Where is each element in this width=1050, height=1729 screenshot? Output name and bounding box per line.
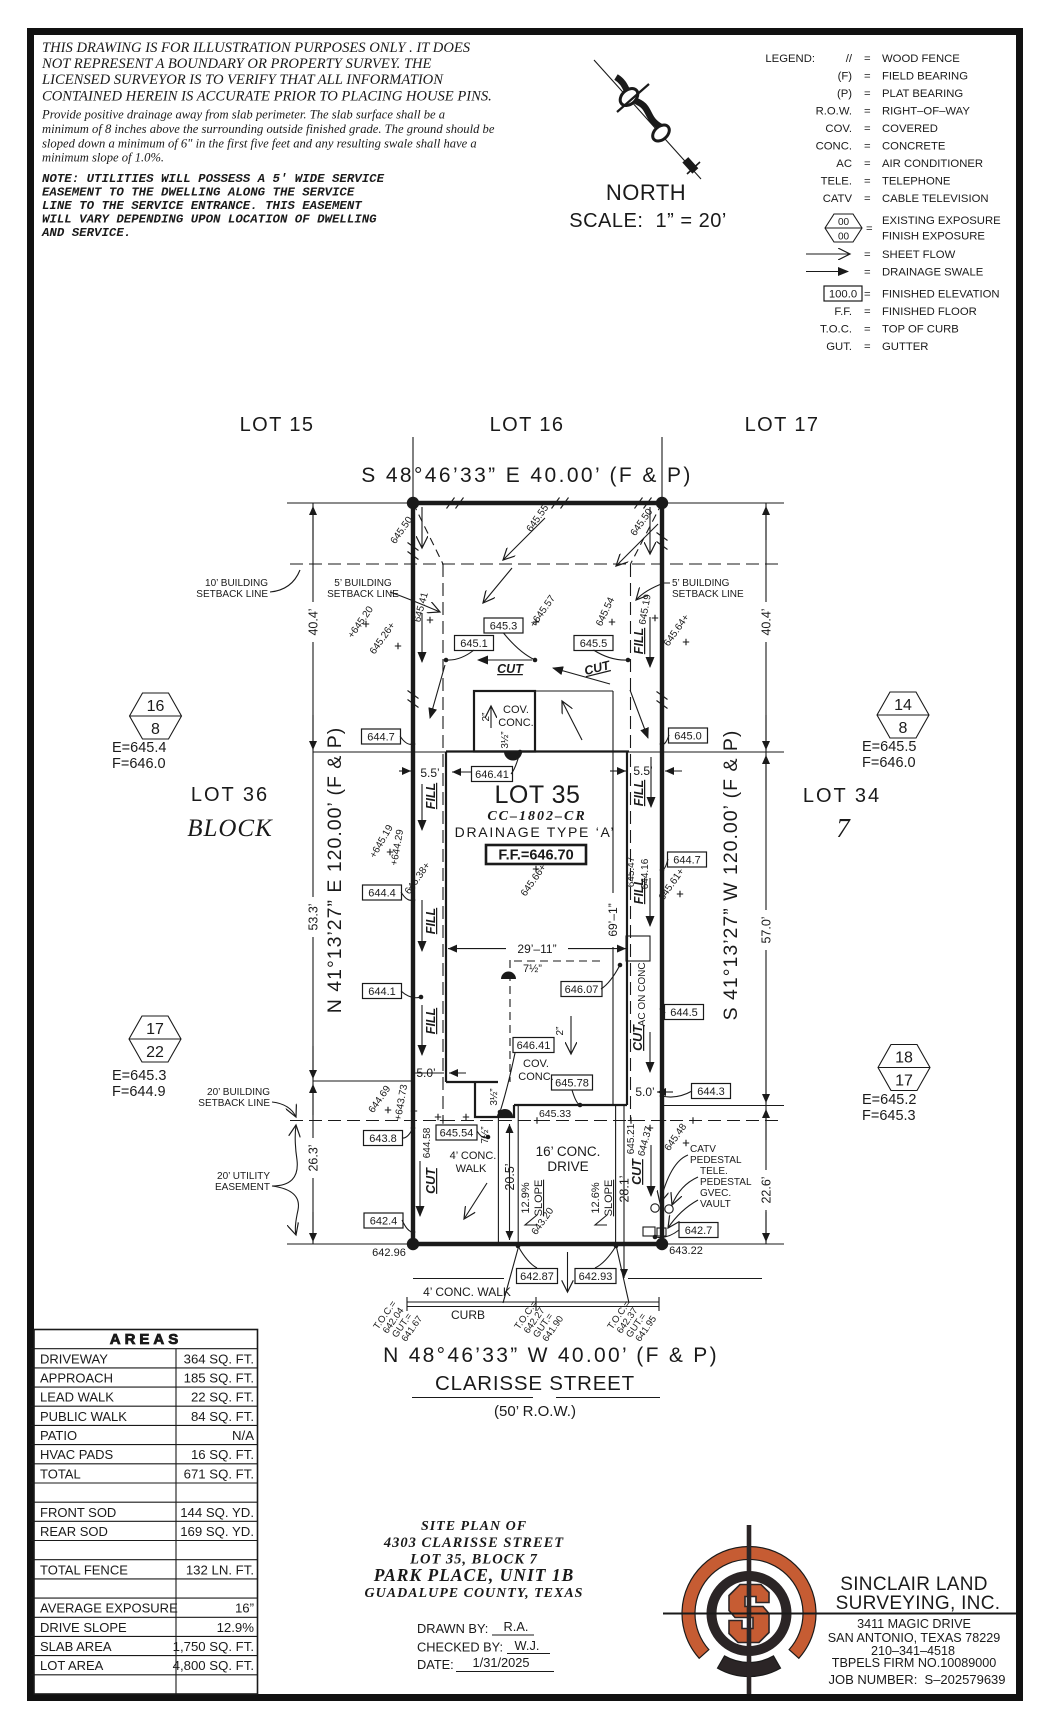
svg-text:CONCRETE: CONCRETE xyxy=(882,141,946,153)
svg-text:PATIO: PATIO xyxy=(40,1428,77,1443)
svg-text:12.6%: 12.6% xyxy=(590,1182,602,1213)
svg-text:20’ UTILITY: 20’ UTILITY xyxy=(217,1171,270,1182)
svg-text:COV.: COV. xyxy=(503,704,529,716)
svg-text:=: = xyxy=(864,158,871,170)
svg-text:FILL: FILL xyxy=(424,908,438,934)
svg-text:643.22: 643.22 xyxy=(669,1245,703,1257)
svg-text:W.J.: W.J. xyxy=(515,1638,540,1653)
svg-text:5’ BUILDING: 5’ BUILDING xyxy=(334,578,392,589)
svg-text:DRIVEWAY: DRIVEWAY xyxy=(40,1351,108,1366)
svg-text:AREAS: AREAS xyxy=(110,1331,183,1348)
svg-text:TELEPHONE: TELEPHONE xyxy=(882,176,951,188)
svg-text:TOTAL FENCE: TOTAL FENCE xyxy=(40,1562,128,1577)
svg-text:LOT 16: LOT 16 xyxy=(490,414,565,436)
svg-text:8: 8 xyxy=(899,720,908,737)
svg-text:646.41: 646.41 xyxy=(475,769,509,781)
svg-text:LOT 34: LOT 34 xyxy=(803,785,881,807)
svg-text:645.3: 645.3 xyxy=(490,621,518,633)
svg-text:minimum slope of 1.0%.: minimum slope of 1.0%. xyxy=(42,151,164,165)
svg-text:E=645.3: E=645.3 xyxy=(112,1068,166,1084)
svg-text:CABLE TELEVISION: CABLE TELEVISION xyxy=(882,193,989,205)
svg-text:5.0’: 5.0’ xyxy=(635,1085,654,1099)
svg-text:=: = xyxy=(864,71,871,83)
svg-text:SETBACK LINE: SETBACK LINE xyxy=(198,1098,270,1109)
svg-text:642.7: 642.7 xyxy=(685,1225,713,1237)
svg-text:SHEET FLOW: SHEET FLOW xyxy=(882,249,956,261)
svg-text:F=645.3: F=645.3 xyxy=(862,1108,916,1124)
svg-text:16”: 16” xyxy=(235,1601,254,1616)
svg-text:EASEMENT TO THE DWELLING ALONG: EASEMENT TO THE DWELLING ALONG THE SERVI… xyxy=(42,186,355,200)
svg-text:N 48°46’33” W 40.00’ (F & P): N 48°46’33” W 40.00’ (F & P) xyxy=(383,1344,719,1367)
svg-text:643.8: 643.8 xyxy=(369,1133,397,1145)
svg-text:4’ CONC.: 4’ CONC. xyxy=(450,1150,497,1162)
svg-text:HVAC PADS: HVAC PADS xyxy=(40,1447,114,1462)
svg-text:SAN ANTONIO, TEXAS 78229: SAN ANTONIO, TEXAS 78229 xyxy=(828,1631,1000,1645)
svg-text:SETBACK LINE: SETBACK LINE xyxy=(672,589,744,600)
svg-text:AND SERVICE.: AND SERVICE. xyxy=(41,226,131,240)
svg-text:GUADALUPE COUNTY, TEXAS: GUADALUPE COUNTY, TEXAS xyxy=(365,1586,584,1601)
svg-text:645.1: 645.1 xyxy=(460,638,488,650)
svg-text:=: = xyxy=(864,289,871,301)
svg-text:LICENSED SURVEYOR IS TO VERIFY: LICENSED SURVEYOR IS TO VERIFY THAT ALL … xyxy=(41,72,444,88)
svg-text:5.5’: 5.5’ xyxy=(420,766,439,780)
svg-text:=: = xyxy=(864,88,871,100)
svg-text:642.87: 642.87 xyxy=(520,1271,554,1283)
svg-text:T.O.C.: T.O.C. xyxy=(820,324,852,336)
svg-text:645.0: 645.0 xyxy=(674,731,702,743)
svg-text:SITE PLAN OF: SITE PLAN OF xyxy=(421,1519,527,1534)
svg-text:CONC.: CONC. xyxy=(816,141,852,153)
svg-text:SLOPE: SLOPE xyxy=(603,1180,615,1217)
svg-text:22.6’: 22.6’ xyxy=(760,1176,774,1203)
svg-text:AC ON CONC.: AC ON CONC. xyxy=(637,960,648,1027)
svg-text:DATE:: DATE: xyxy=(417,1657,454,1672)
svg-text:4,800 SQ. FT.: 4,800 SQ. FT. xyxy=(173,1658,254,1673)
svg-text:644.16: 644.16 xyxy=(640,858,651,889)
svg-text:CONTAINED HEREIN IS ACCURATE P: CONTAINED HEREIN IS ACCURATE PRIOR TO PL… xyxy=(42,88,492,104)
svg-text:22 SQ. FT.: 22 SQ. FT. xyxy=(191,1390,254,1405)
svg-text:00: 00 xyxy=(838,217,850,228)
svg-text:00: 00 xyxy=(838,232,850,243)
svg-text:AVERAGE EXPOSURE: AVERAGE EXPOSURE xyxy=(40,1601,178,1616)
svg-text:=: = xyxy=(864,249,871,261)
svg-text:COV.: COV. xyxy=(825,123,852,135)
svg-text:644.3: 644.3 xyxy=(697,1086,725,1098)
svg-text:(F): (F) xyxy=(838,71,853,83)
svg-text:2”: 2” xyxy=(555,1027,566,1036)
svg-text:646.41: 646.41 xyxy=(517,1040,551,1052)
svg-text:PUBLIC WALK: PUBLIC WALK xyxy=(40,1409,127,1424)
svg-text:R.A.: R.A. xyxy=(504,1619,529,1634)
svg-text:SLAB AREA: SLAB AREA xyxy=(40,1639,112,1654)
svg-text:4303 CLARISSE STREET: 4303 CLARISSE STREET xyxy=(383,1535,564,1551)
svg-text:EASEMENT: EASEMENT xyxy=(215,1182,270,1193)
svg-text:R.O.W.: R.O.W. xyxy=(816,106,852,118)
svg-text:WALK: WALK xyxy=(456,1163,487,1175)
svg-text:12.9%: 12.9% xyxy=(520,1182,532,1213)
svg-text:7½”: 7½” xyxy=(523,963,542,975)
svg-text:169 SQ. YD.: 169 SQ. YD. xyxy=(180,1524,254,1539)
svg-text:APPROACH: APPROACH xyxy=(40,1371,113,1386)
svg-text:LOT 35: LOT 35 xyxy=(495,781,581,809)
svg-text:F=644.9: F=644.9 xyxy=(112,1084,166,1100)
svg-text:=: = xyxy=(864,341,871,353)
svg-text:69’–1”: 69’–1” xyxy=(606,903,620,936)
svg-text:671 SQ. FT.: 671 SQ. FT. xyxy=(184,1466,254,1481)
svg-text:646.07: 646.07 xyxy=(565,984,599,996)
svg-text:645.5: 645.5 xyxy=(580,638,608,650)
svg-text:CUT: CUT xyxy=(630,1158,644,1185)
svg-text:645.54: 645.54 xyxy=(440,1128,474,1140)
svg-text:17: 17 xyxy=(895,1073,913,1090)
svg-text:GUTTER: GUTTER xyxy=(882,341,928,353)
svg-text:645.21: 645.21 xyxy=(626,1123,637,1154)
svg-text:VAULT: VAULT xyxy=(700,1199,731,1210)
svg-text:sloped down a minimum of 6" in: sloped down a minimum of 6" in the first… xyxy=(42,136,477,150)
svg-text:TOTAL: TOTAL xyxy=(40,1466,81,1481)
svg-text:CURB: CURB xyxy=(451,1308,485,1322)
svg-text:645.33: 645.33 xyxy=(539,1108,571,1120)
svg-text:=: = xyxy=(864,106,871,118)
svg-text:S 48°46’33” E 40.00’ (F & P): S 48°46’33” E 40.00’ (F & P) xyxy=(361,464,693,487)
svg-text:WILL VARY DEPENDING UPON LOCAT: WILL VARY DEPENDING UPON LOCATION OF DWE… xyxy=(42,213,377,227)
svg-text:CUT: CUT xyxy=(497,662,524,676)
svg-text:4’ CONC. WALK: 4’ CONC. WALK xyxy=(423,1285,511,1299)
svg-text:CHECKED BY:: CHECKED BY: xyxy=(417,1640,503,1655)
svg-text:CATV: CATV xyxy=(823,193,853,205)
svg-text:THIS DRAWING IS FOR ILLUSTRATI: THIS DRAWING IS FOR ILLUSTRATION PURPOSE… xyxy=(42,40,471,56)
svg-text:=: = xyxy=(864,306,871,318)
svg-text:7: 7 xyxy=(836,813,851,843)
svg-text:3½”: 3½” xyxy=(489,1088,500,1105)
svg-text:LEAD WALK: LEAD WALK xyxy=(40,1390,114,1405)
svg-text:N/A: N/A xyxy=(232,1428,254,1443)
svg-text:16: 16 xyxy=(147,698,165,715)
svg-text:=: = xyxy=(864,324,871,336)
svg-text:CUT: CUT xyxy=(631,1024,645,1051)
svg-text:PEDESTAL: PEDESTAL xyxy=(700,1177,752,1188)
svg-text:SCALE: 1” = 20’: SCALE: 1” = 20’ xyxy=(569,210,727,232)
svg-text:26.3’: 26.3’ xyxy=(307,1144,321,1171)
svg-text:FIELD BEARING: FIELD BEARING xyxy=(882,71,968,83)
svg-text:DRAINAGE SWALE: DRAINAGE SWALE xyxy=(882,267,984,279)
svg-text:FINISHED FLOOR: FINISHED FLOOR xyxy=(882,306,977,318)
svg-text:E=645.4: E=645.4 xyxy=(112,740,166,756)
svg-text:SURVEYING, INC.: SURVEYING, INC. xyxy=(836,1593,1001,1614)
svg-text:1,750 SQ. FT.: 1,750 SQ. FT. xyxy=(173,1639,254,1654)
svg-text:144 SQ. YD.: 144 SQ. YD. xyxy=(180,1505,254,1520)
svg-text:644.7: 644.7 xyxy=(673,855,701,867)
svg-text:7½”: 7½” xyxy=(480,1126,491,1143)
svg-text:BLOCK: BLOCK xyxy=(187,815,273,842)
svg-text:40.4’: 40.4’ xyxy=(307,608,321,635)
svg-text:=: = xyxy=(864,141,871,153)
svg-text:LOT 17: LOT 17 xyxy=(745,414,820,436)
svg-text:DRAINAGE TYPE ‘A’: DRAINAGE TYPE ‘A’ xyxy=(455,824,616,840)
svg-text:=: = xyxy=(864,193,871,205)
svg-text:E=645.5: E=645.5 xyxy=(862,739,916,755)
svg-text:EXISTING EXPOSURE: EXISTING EXPOSURE xyxy=(882,215,1001,227)
svg-text:N 41°13’27” E 120.00’ (F & P): N 41°13’27” E 120.00’ (F & P) xyxy=(324,727,346,1013)
svg-text:645.78: 645.78 xyxy=(555,1078,589,1090)
svg-text:=: = xyxy=(864,123,871,135)
svg-text:132 LN. FT.: 132 LN. FT. xyxy=(186,1562,254,1577)
svg-text:CUT: CUT xyxy=(424,1167,438,1194)
svg-text:17: 17 xyxy=(146,1021,164,1038)
svg-text:GVEC.: GVEC. xyxy=(700,1188,731,1199)
svg-text:5’ BUILDING: 5’ BUILDING xyxy=(672,578,730,589)
svg-text:40.4’: 40.4’ xyxy=(760,608,774,635)
svg-text:645.47: 645.47 xyxy=(626,856,637,887)
svg-text:CC–1802–CR: CC–1802–CR xyxy=(487,809,586,824)
svg-text:644.58: 644.58 xyxy=(422,1127,433,1158)
svg-text:F.F.=646.70: F.F.=646.70 xyxy=(498,848,573,864)
svg-text:644.5: 644.5 xyxy=(670,1007,698,1019)
svg-text:RIGHT–OF–WAY: RIGHT–OF–WAY xyxy=(882,106,970,118)
svg-text:84 SQ. FT.: 84 SQ. FT. xyxy=(191,1409,254,1424)
svg-text:PLAT BEARING: PLAT BEARING xyxy=(882,88,963,100)
svg-text:TBPELS FIRM NO.10089000: TBPELS FIRM NO.10089000 xyxy=(832,1656,997,1670)
svg-text:COVERED: COVERED xyxy=(882,123,938,135)
svg-text:F=646.0: F=646.0 xyxy=(862,755,916,771)
svg-text:16 SQ. FT.: 16 SQ. FT. xyxy=(191,1447,254,1462)
svg-text:16’ CONC.: 16’ CONC. xyxy=(536,1144,601,1159)
svg-text:SETBACK LINE: SETBACK LINE xyxy=(327,589,399,600)
svg-text:CLARISSE STREET: CLARISSE STREET xyxy=(435,1372,635,1395)
svg-text:GUT.: GUT. xyxy=(826,341,852,353)
svg-text:NOTE: UTILITIES WILL POSSESS A: NOTE: UTILITIES WILL POSSESS A 5' WIDE S… xyxy=(42,172,385,186)
svg-text:12.9%: 12.9% xyxy=(217,1620,255,1635)
svg-text:642.93: 642.93 xyxy=(579,1271,613,1283)
svg-text:=: = xyxy=(864,267,871,279)
svg-text:=: = xyxy=(864,176,871,188)
svg-text:JOB NUMBER: S–202579639: JOB NUMBER: S–202579639 xyxy=(828,1672,1005,1687)
svg-text:LEGEND:: LEGEND: xyxy=(765,53,815,65)
svg-text:1/31/2025: 1/31/2025 xyxy=(473,1655,530,1670)
svg-text:NORTH: NORTH xyxy=(606,180,686,205)
svg-text:644.4: 644.4 xyxy=(368,888,396,900)
svg-text:Provide positive drainage away: Provide positive drainage away from slab… xyxy=(41,108,445,122)
svg-text:29’–11”: 29’–11” xyxy=(517,942,556,956)
svg-text:LINE TO THE SERVICE ENTRANCE.: LINE TO THE SERVICE ENTRANCE. THIS EASEM… xyxy=(42,199,363,213)
svg-text:E=645.2: E=645.2 xyxy=(862,1092,916,1108)
svg-text:AC: AC xyxy=(836,158,852,170)
svg-text:NOT REPRESENT A BOUNDARY OR PR: NOT REPRESENT A BOUNDARY OR PROPERTY SUR… xyxy=(41,56,432,72)
svg-text:22: 22 xyxy=(146,1044,164,1061)
svg-text:20’ BUILDING: 20’ BUILDING xyxy=(207,1087,270,1098)
svg-text:(P): (P) xyxy=(837,88,852,100)
svg-text:TELE.: TELE. xyxy=(821,176,852,188)
svg-text:FINISHED ELEVATION: FINISHED ELEVATION xyxy=(882,289,1000,301)
svg-text:CONC.: CONC. xyxy=(498,717,533,729)
svg-text:FINISH EXPOSURE: FINISH EXPOSURE xyxy=(882,231,985,243)
svg-text:DRAWN BY:: DRAWN BY: xyxy=(417,1621,488,1636)
svg-text:S 41°13’27” W 120.00’ (F & P): S 41°13’27” W 120.00’ (F & P) xyxy=(720,730,742,1021)
svg-text:FRONT SOD: FRONT SOD xyxy=(40,1505,116,1520)
svg-text:FILL: FILL xyxy=(424,1008,438,1034)
svg-text:FILL: FILL xyxy=(424,783,438,809)
svg-text:14: 14 xyxy=(894,697,912,714)
svg-text:644.7: 644.7 xyxy=(367,732,395,744)
svg-text:WOOD FENCE: WOOD FENCE xyxy=(882,53,960,65)
svg-text:REAR SOD: REAR SOD xyxy=(40,1524,108,1539)
svg-text:FILL: FILL xyxy=(632,628,646,654)
svg-text:18: 18 xyxy=(895,1050,913,1067)
svg-text:3½”: 3½” xyxy=(500,731,511,748)
svg-text://: // xyxy=(846,53,853,65)
svg-text:644.1: 644.1 xyxy=(368,986,396,998)
svg-text:TELE.: TELE. xyxy=(700,1166,728,1177)
svg-text:TOP OF CURB: TOP OF CURB xyxy=(882,324,959,336)
svg-text:8: 8 xyxy=(151,721,160,738)
svg-text:DRIVE: DRIVE xyxy=(547,1159,588,1174)
svg-text:COV.: COV. xyxy=(523,1058,549,1070)
svg-text:53.3’: 53.3’ xyxy=(307,903,321,930)
svg-text:642.96: 642.96 xyxy=(372,1247,406,1259)
svg-text:AIR CONDITIONER: AIR CONDITIONER xyxy=(882,158,983,170)
svg-text:minimum of 8 inches above the: minimum of 8 inches above the surroundin… xyxy=(42,122,495,136)
svg-text:642.4: 642.4 xyxy=(370,1216,398,1228)
svg-text:F.F.: F.F. xyxy=(834,306,852,318)
svg-text:57.0’: 57.0’ xyxy=(760,916,774,943)
svg-text:=: = xyxy=(864,53,871,65)
svg-text:FILL: FILL xyxy=(632,780,646,806)
svg-text:(50’ R.O.W.): (50’ R.O.W.) xyxy=(494,1403,576,1420)
svg-text:DRIVE SLOPE: DRIVE SLOPE xyxy=(40,1620,127,1635)
svg-text:PARK PLACE, UNIT 1B: PARK PLACE, UNIT 1B xyxy=(373,1565,575,1585)
svg-text:185 SQ. FT.: 185 SQ. FT. xyxy=(184,1371,254,1386)
svg-text:LOT 36: LOT 36 xyxy=(191,784,269,806)
svg-text:3411 MAGIC DRIVE: 3411 MAGIC DRIVE xyxy=(857,1617,971,1631)
svg-text:5.5’: 5.5’ xyxy=(633,764,652,778)
svg-text:364 SQ. FT.: 364 SQ. FT. xyxy=(184,1351,254,1366)
svg-text:SINCLAIR LAND: SINCLAIR LAND xyxy=(840,1574,988,1595)
svg-text:LOT 15: LOT 15 xyxy=(240,414,315,436)
svg-text:PEDESTAL: PEDESTAL xyxy=(690,1155,742,1166)
svg-text:F=646.0: F=646.0 xyxy=(112,756,166,772)
svg-text:=: = xyxy=(866,223,873,235)
svg-text:100.0: 100.0 xyxy=(829,289,857,301)
svg-text:10’ BUILDING: 10’ BUILDING xyxy=(205,578,268,589)
svg-text:LOT AREA: LOT AREA xyxy=(40,1658,104,1673)
svg-text:2”: 2” xyxy=(481,713,492,722)
svg-text:CATV: CATV xyxy=(690,1144,716,1155)
svg-text:SETBACK LINE: SETBACK LINE xyxy=(196,589,268,600)
svg-text:CONC.: CONC. xyxy=(518,1071,553,1083)
